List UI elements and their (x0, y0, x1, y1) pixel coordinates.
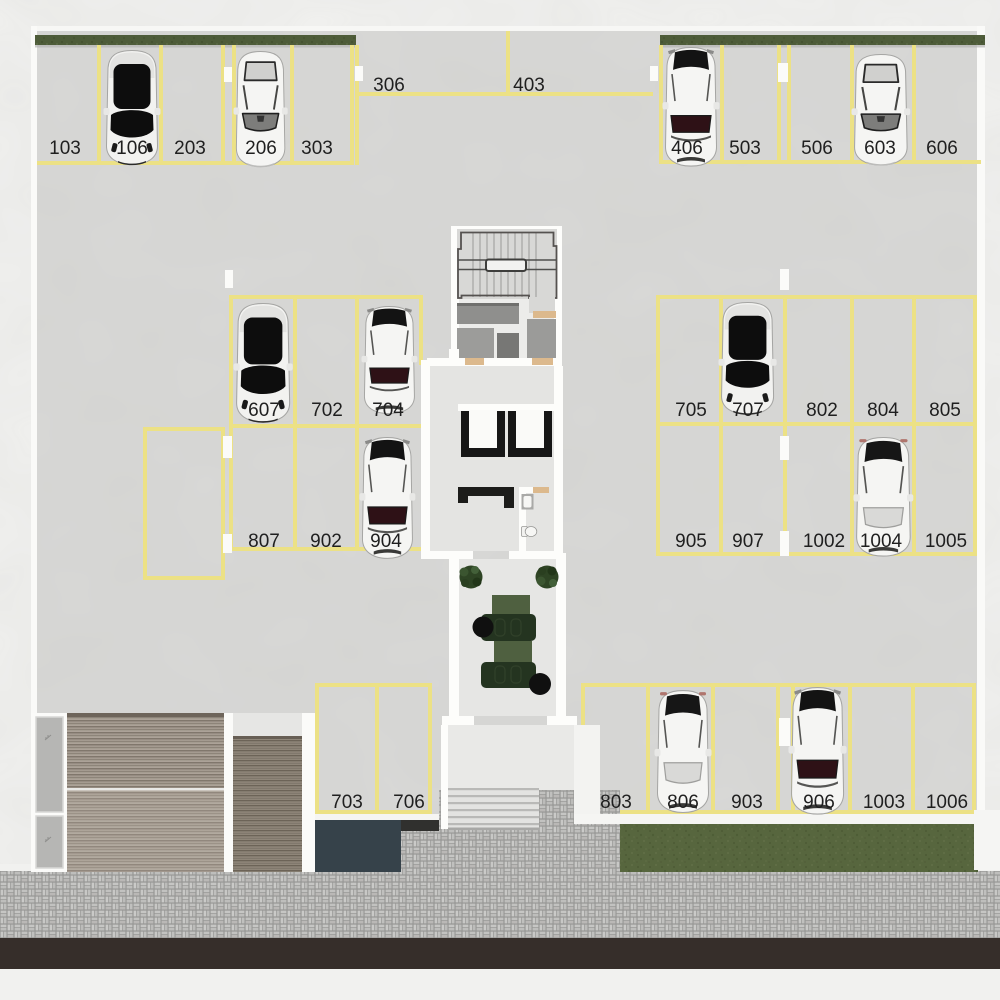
svg-text:805: 805 (929, 400, 961, 421)
svg-text:702: 702 (311, 400, 343, 421)
svg-text:503: 503 (729, 138, 761, 159)
svg-text:806: 806 (667, 792, 699, 813)
svg-text:906: 906 (803, 792, 835, 813)
svg-text:206: 206 (245, 138, 277, 159)
svg-text:607: 607 (248, 400, 280, 421)
svg-text:807: 807 (248, 531, 280, 552)
svg-text:106: 106 (116, 138, 148, 159)
svg-text:406: 406 (671, 138, 703, 159)
svg-text:706: 706 (393, 792, 425, 813)
svg-text:303: 303 (301, 138, 333, 159)
svg-text:606: 606 (926, 138, 958, 159)
svg-text:903: 903 (731, 792, 763, 813)
svg-text:904: 904 (370, 531, 402, 552)
svg-text:804: 804 (867, 400, 899, 421)
svg-text:902: 902 (310, 531, 342, 552)
svg-text:907: 907 (732, 531, 764, 552)
svg-text:1005: 1005 (925, 531, 967, 552)
svg-text:1006: 1006 (926, 792, 968, 813)
svg-text:705: 705 (675, 400, 707, 421)
svg-text:403: 403 (513, 75, 545, 96)
svg-text:707: 707 (732, 400, 764, 421)
svg-text:506: 506 (801, 138, 833, 159)
svg-text:306: 306 (373, 75, 405, 96)
svg-text:1003: 1003 (863, 792, 905, 813)
svg-text:1004: 1004 (860, 531, 903, 552)
svg-text:203: 203 (174, 138, 206, 159)
svg-text:803: 803 (600, 792, 632, 813)
svg-text:802: 802 (806, 400, 838, 421)
svg-text:103: 103 (49, 138, 81, 159)
svg-text:1002: 1002 (803, 531, 845, 552)
svg-text:703: 703 (331, 792, 363, 813)
svg-text:603: 603 (864, 138, 896, 159)
svg-text:704: 704 (372, 400, 404, 421)
svg-text:905: 905 (675, 531, 707, 552)
